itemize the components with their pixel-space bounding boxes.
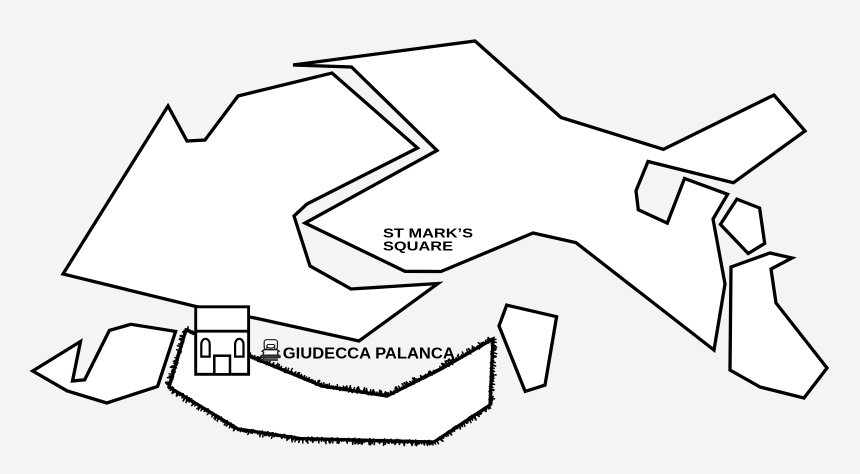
svg-text:GIUDECCA PALANCA: GIUDECCA PALANCA	[283, 345, 455, 362]
svg-text:SQUARE: SQUARE	[383, 238, 454, 253]
